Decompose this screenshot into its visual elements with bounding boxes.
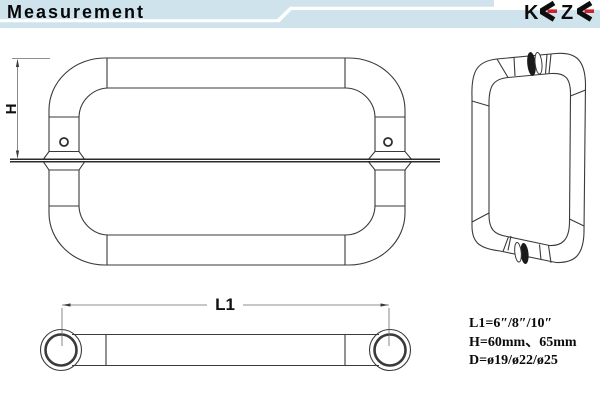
dimension-l1: L1 xyxy=(62,295,389,346)
specs-block: L1=6″/8″/10″ H=60mm、65mm D=ø19/ø22/ø25 xyxy=(469,315,597,371)
l1-arrow-left xyxy=(63,303,71,306)
l1-arrow-right xyxy=(381,303,389,306)
spec-line-h: H=60mm、65mm xyxy=(469,334,597,353)
bottom-view xyxy=(41,330,411,371)
end-cap-left-inner xyxy=(46,335,77,366)
end-cap-right-inner xyxy=(375,335,406,366)
spec-line-d: D=ø19/ø22/ø25 xyxy=(469,352,597,371)
h-arrow-top xyxy=(16,59,19,67)
screw-hole-right xyxy=(384,138,392,146)
dimension-h: H xyxy=(3,59,50,159)
screw-hole-left xyxy=(60,138,68,146)
h-arrow-bottom xyxy=(16,151,19,159)
measurement-sheet: Measurement K Z xyxy=(0,0,600,400)
spec-line-l1: L1=6″/8″/10″ xyxy=(469,315,597,334)
l1-label: L1 xyxy=(215,295,235,314)
bottom-tube-body xyxy=(72,335,379,366)
side-view-inner-tube xyxy=(489,73,571,245)
h-label: H xyxy=(3,104,20,115)
side-view xyxy=(472,53,586,262)
side-view-washer-bottom xyxy=(514,242,530,264)
